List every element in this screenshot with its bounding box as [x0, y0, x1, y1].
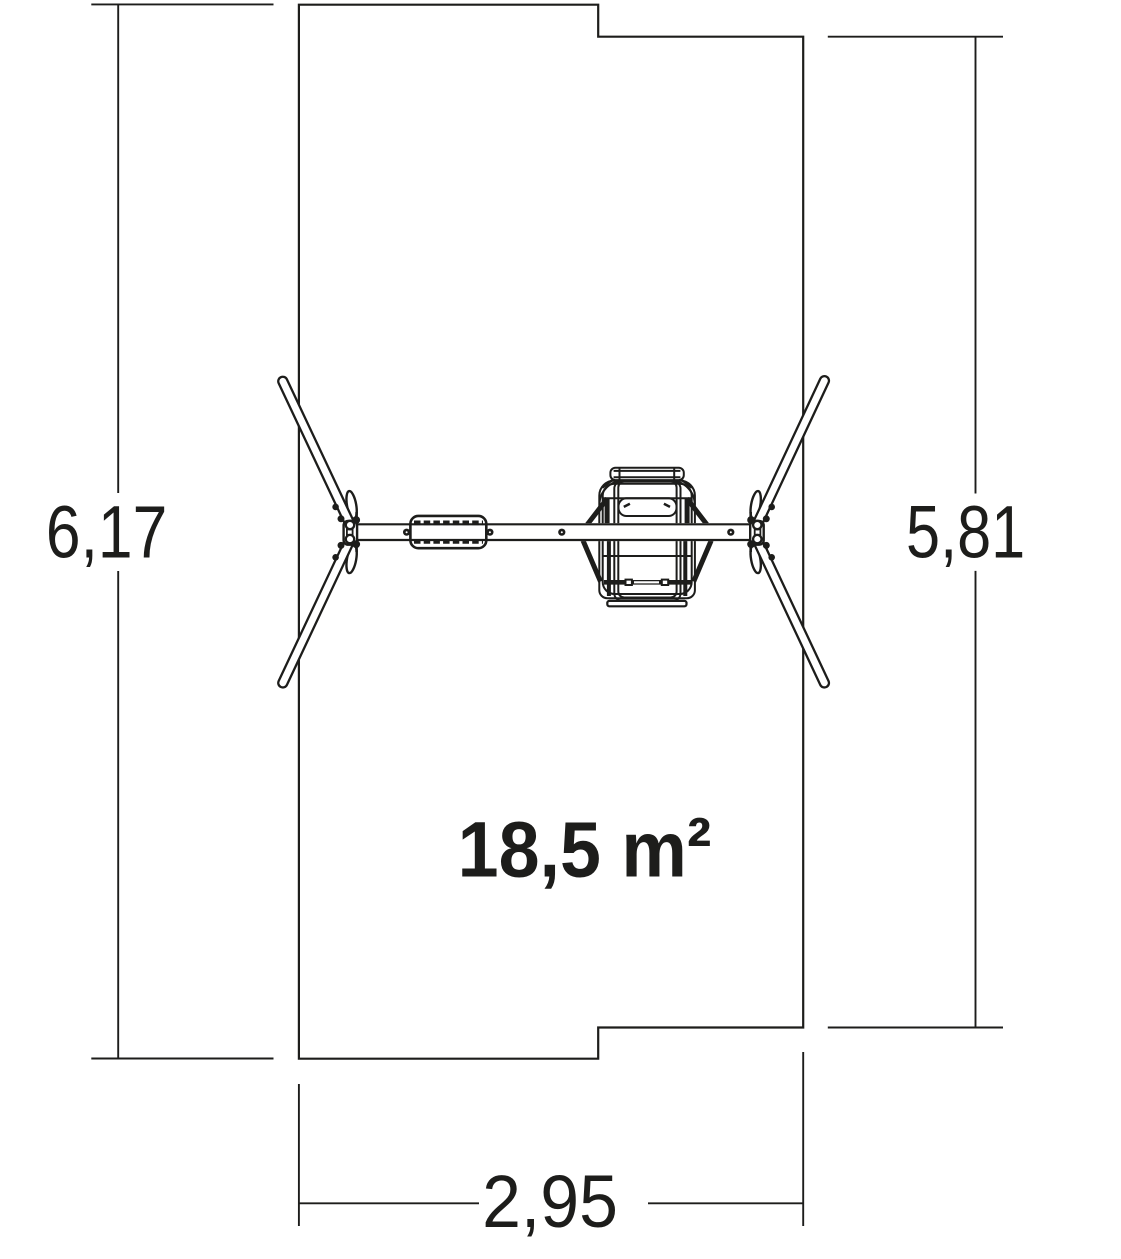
svg-text:5,81: 5,81	[906, 491, 1025, 574]
svg-text:6,17: 6,17	[46, 490, 167, 574]
svg-text:18,5 m²: 18,5 m²	[458, 803, 712, 894]
svg-text:2,95: 2,95	[482, 1161, 618, 1244]
